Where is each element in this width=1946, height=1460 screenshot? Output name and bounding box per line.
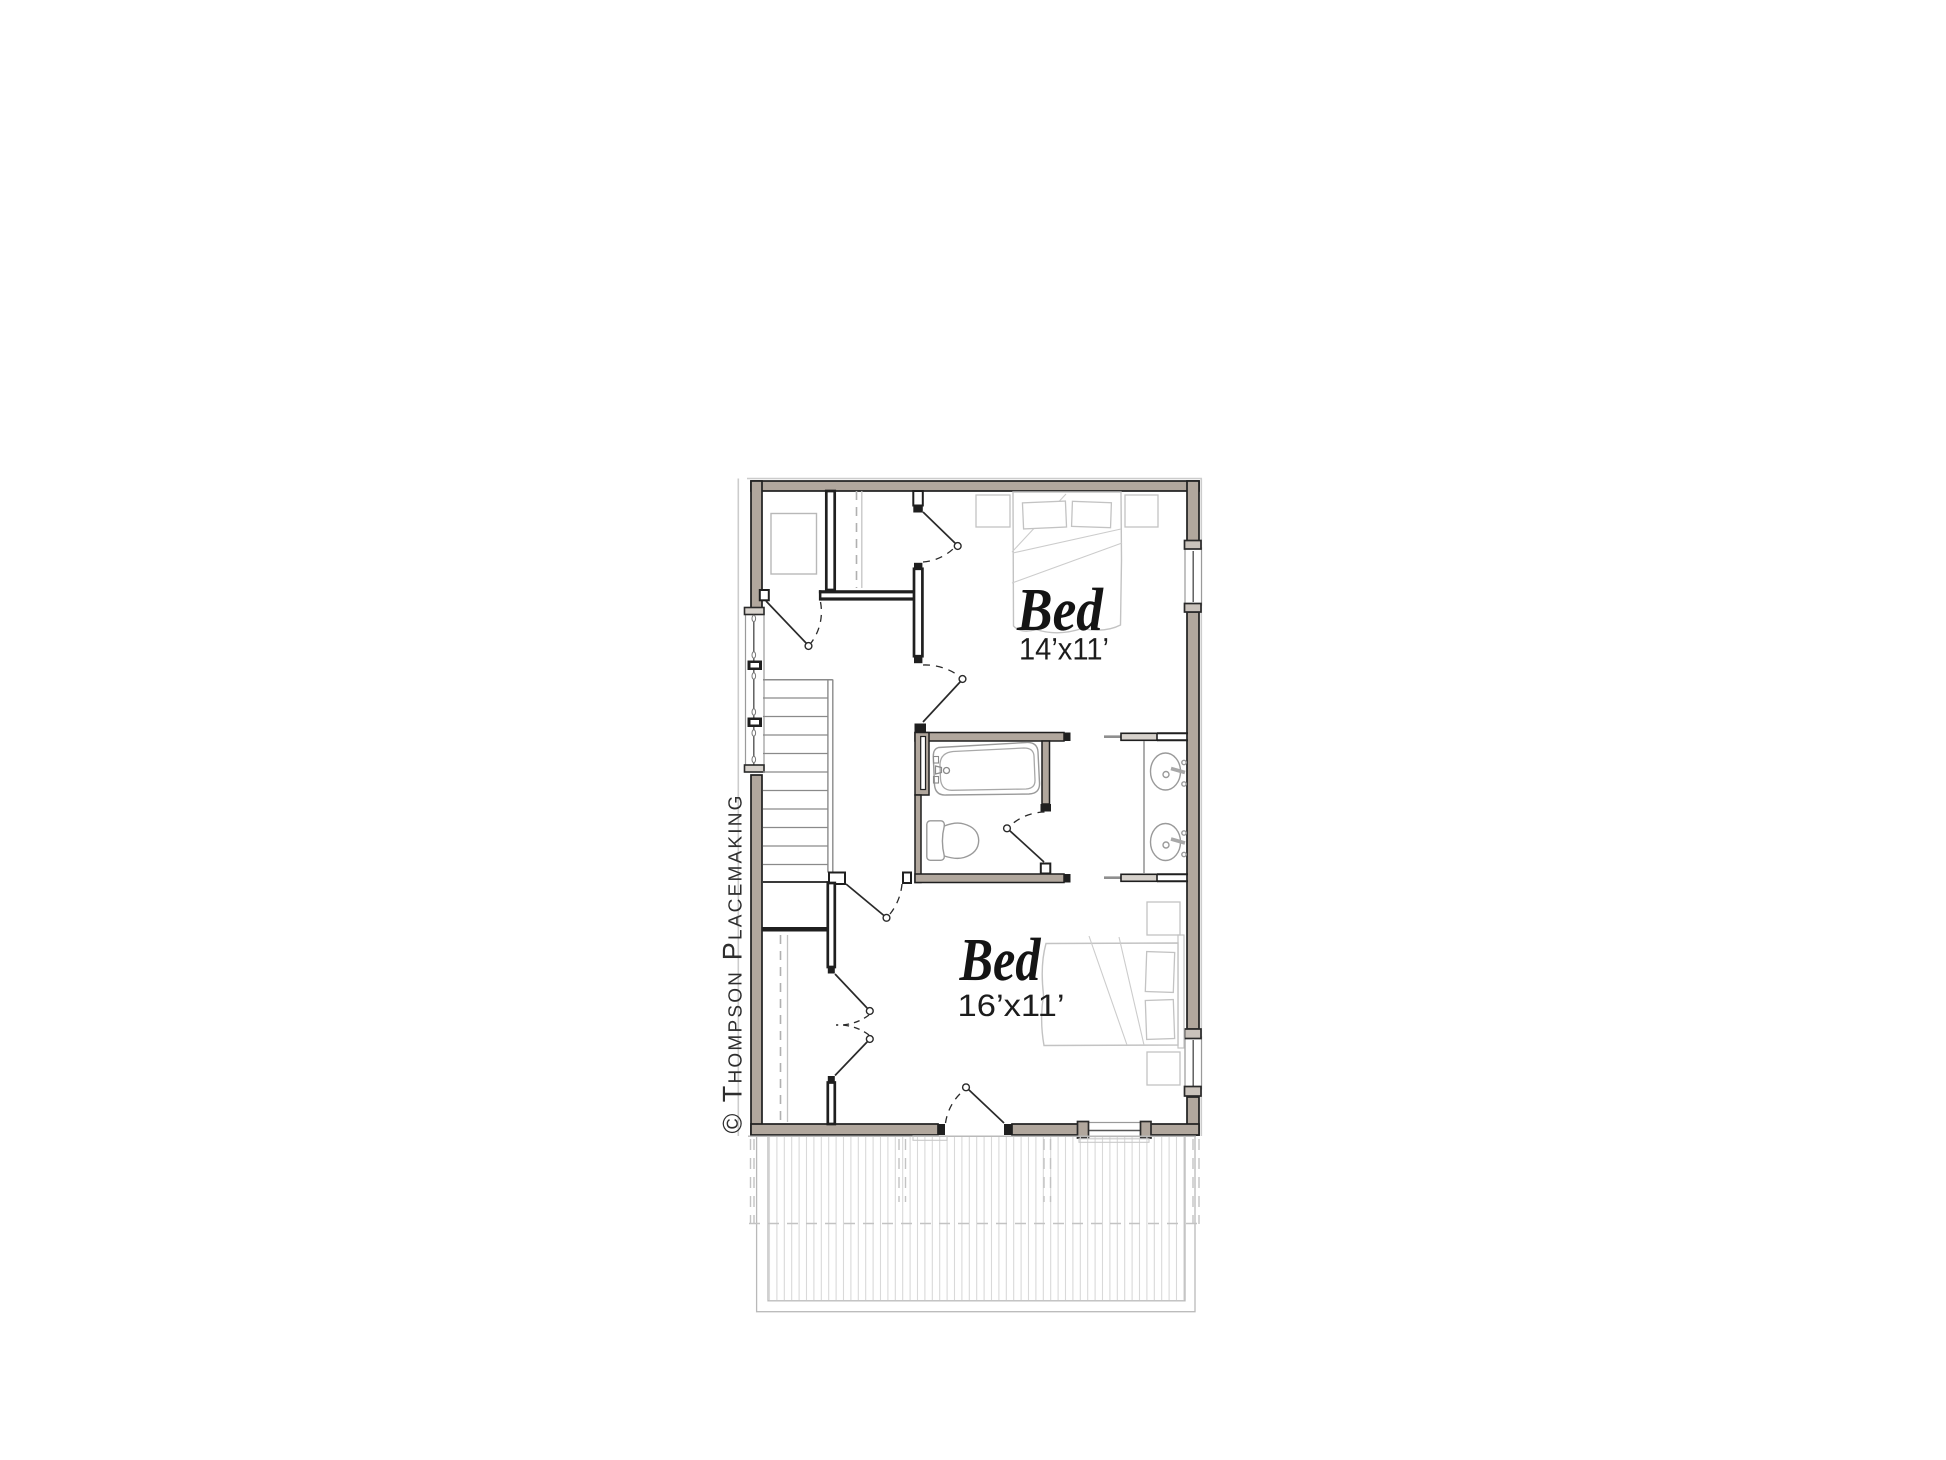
svg-text:14’x11’: 14’x11’: [1019, 632, 1109, 667]
svg-text:16’x11’: 16’x11’: [958, 988, 1065, 1023]
svg-text:Bed: Bed: [959, 927, 1042, 994]
